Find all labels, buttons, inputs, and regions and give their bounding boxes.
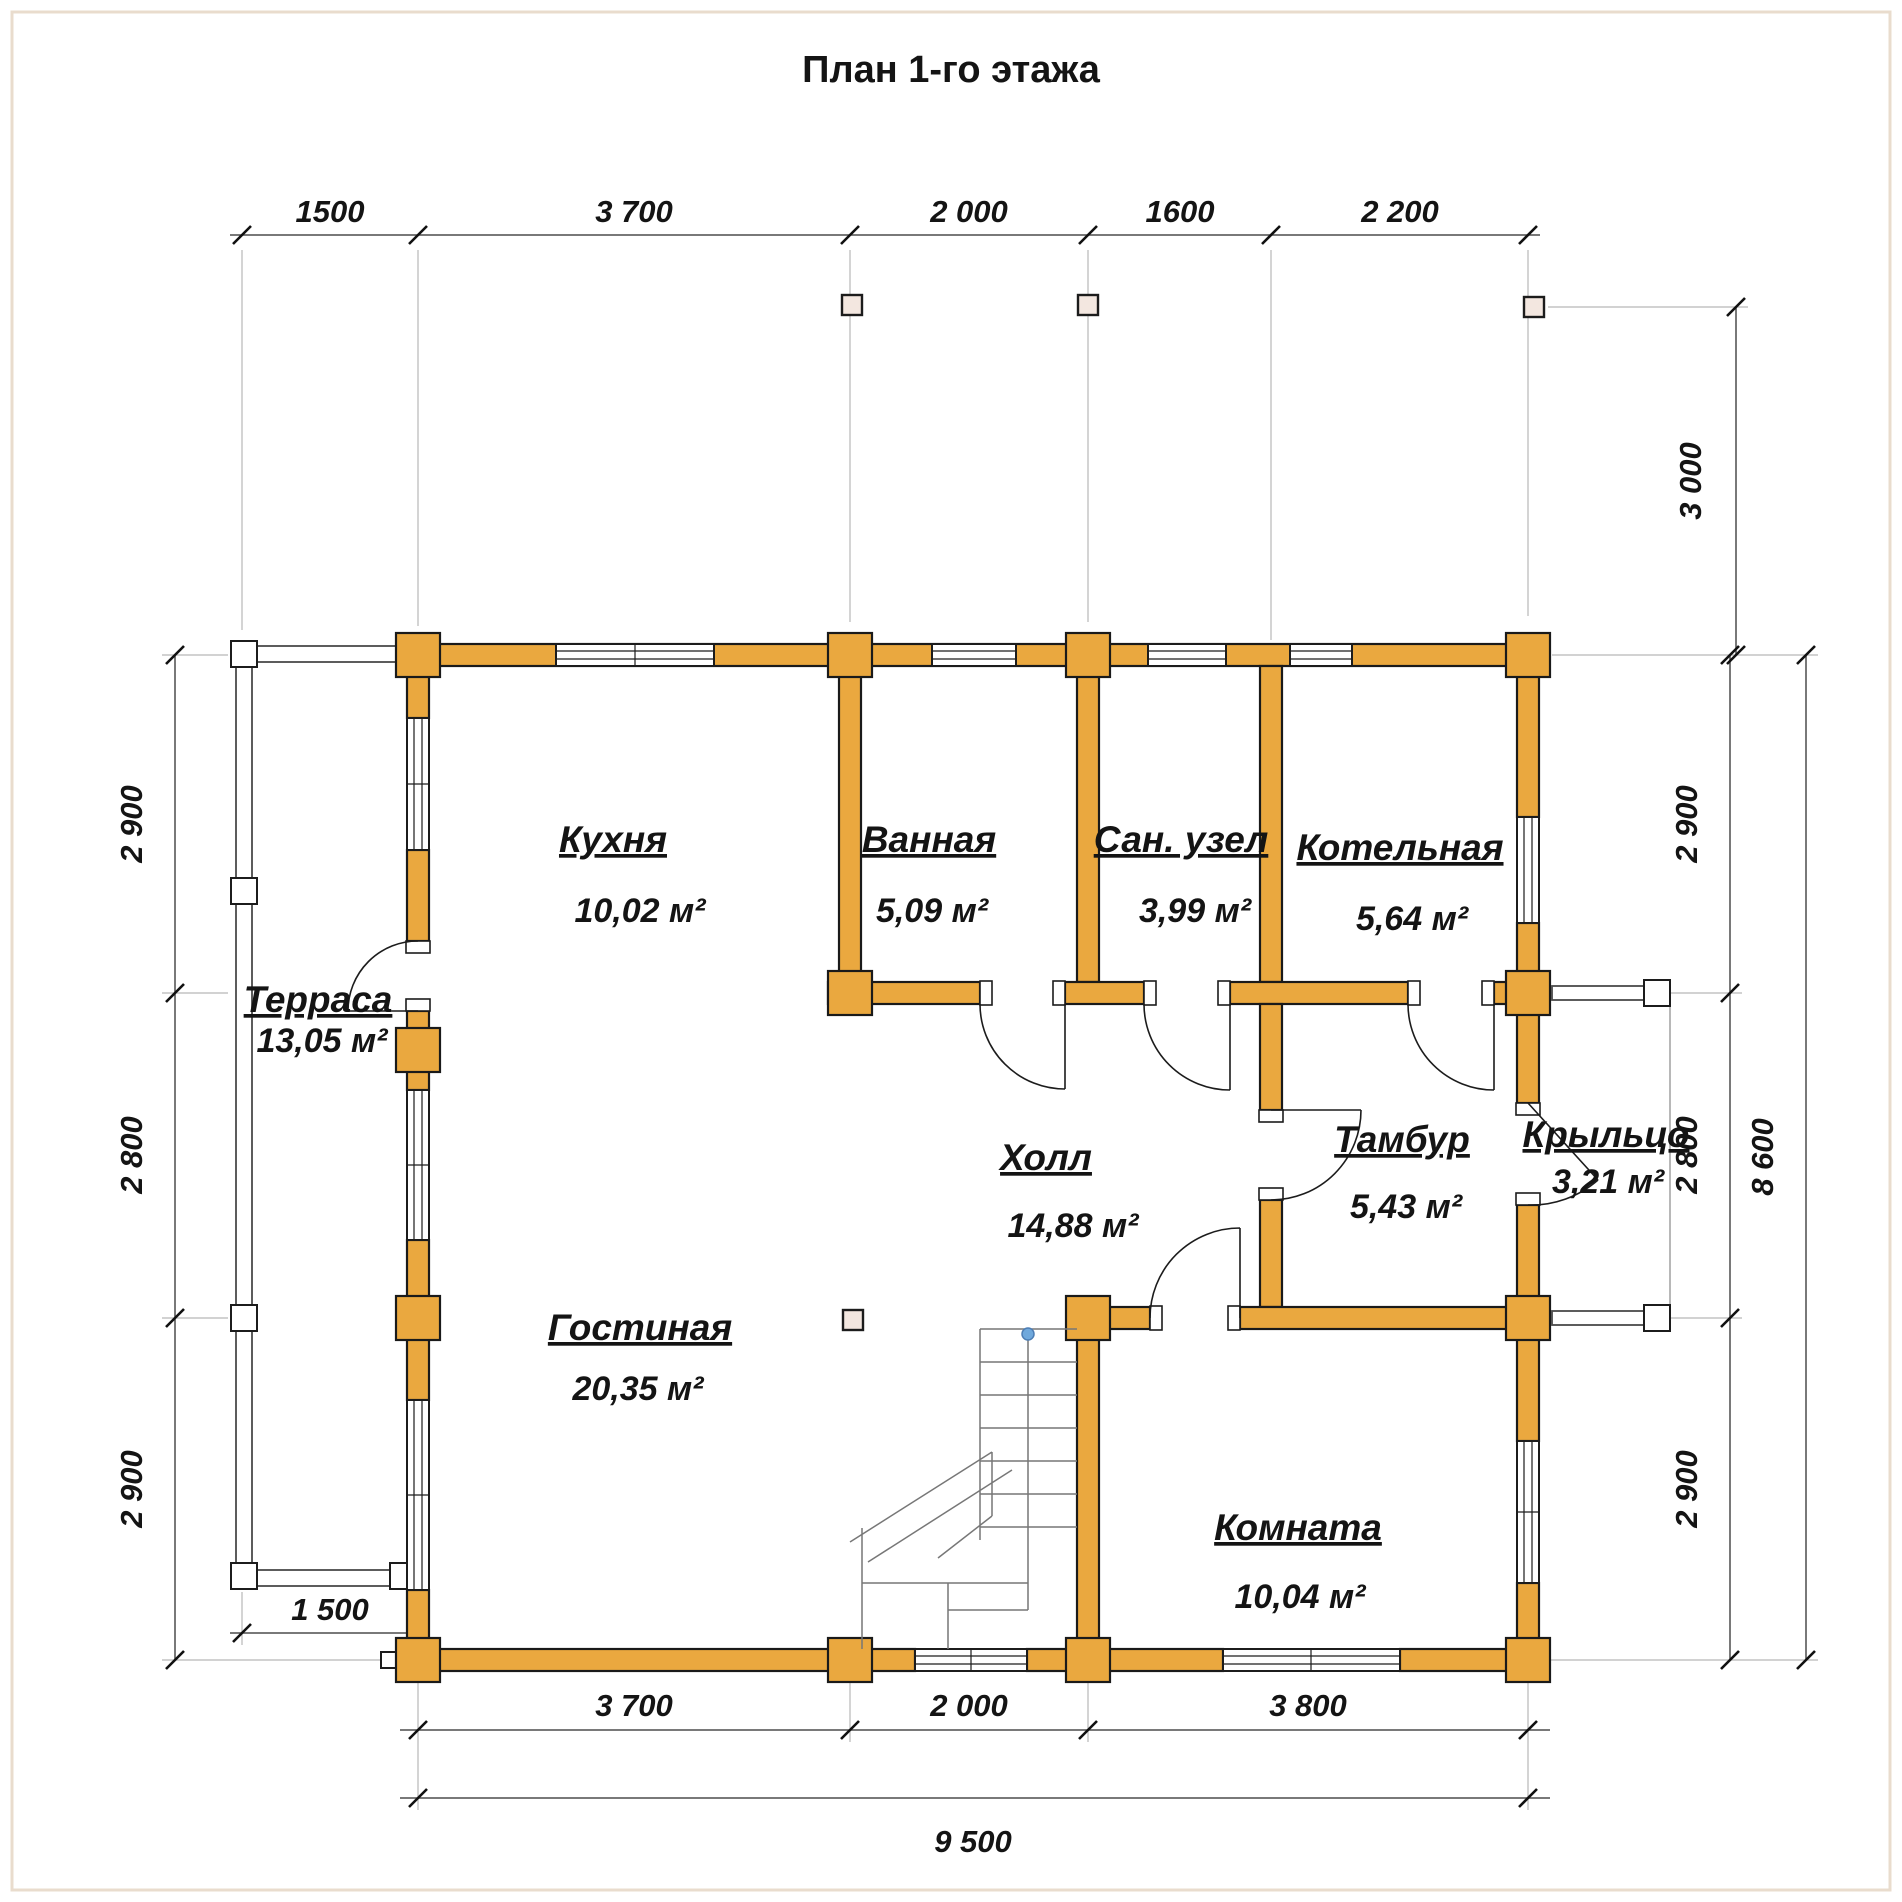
wall-column xyxy=(1066,1638,1110,1682)
door-jamb xyxy=(980,981,992,1005)
floor-plan-drawing: План 1-го этажа 1500 3 700 2 000 1600 2 … xyxy=(0,0,1902,1902)
wall-bath-row-bottom xyxy=(1230,982,1408,1004)
door-jamb xyxy=(1259,1188,1283,1200)
window-wc-top xyxy=(1148,644,1226,666)
wall-left-segment xyxy=(407,850,429,941)
door-jamb xyxy=(1150,1306,1162,1330)
room-label-hall: Холл xyxy=(998,1137,1092,1178)
door-jamb xyxy=(1516,1193,1540,1205)
room-label-living: Гостиная xyxy=(548,1307,732,1348)
dim-top-1600: 1600 xyxy=(1146,194,1215,229)
room-area-terrace: 13,05 м² xyxy=(256,1022,389,1060)
terrace-post xyxy=(231,641,257,667)
wall-column xyxy=(396,1296,440,1340)
dim-right-3000: 3 000 xyxy=(1673,442,1708,520)
room-label-wc: Сан. узел xyxy=(1094,819,1269,860)
terrace-post xyxy=(231,878,257,904)
terrace-post xyxy=(231,1563,257,1589)
wall-column xyxy=(396,1028,440,1072)
dim-right-2900b: 2 900 xyxy=(1669,1450,1704,1529)
door-jamb xyxy=(406,999,430,1011)
page-background xyxy=(0,0,1902,1902)
room-label-terrace: Терраса xyxy=(244,979,393,1020)
column-marker-icon xyxy=(843,1310,863,1330)
door-jamb xyxy=(1482,981,1494,1005)
wall-hall-tambour xyxy=(1260,1200,1282,1307)
dim-left-2900b: 2 900 xyxy=(114,1450,149,1529)
dim-left-2900a: 2 900 xyxy=(114,785,149,864)
room-area-porch: 3,21 м² xyxy=(1552,1163,1666,1201)
room-label-tambour: Тамбур xyxy=(1334,1119,1470,1160)
room-area-kitchen: 10,02 м² xyxy=(574,892,707,930)
room-area-wc: 3,99 м² xyxy=(1139,892,1253,930)
wall-column xyxy=(1066,1296,1110,1340)
door-jamb xyxy=(1259,1110,1283,1122)
window-bathroom-top xyxy=(932,644,1016,666)
wall-column xyxy=(396,1638,440,1682)
terrace-rail-bottom xyxy=(236,1570,410,1586)
room-label-bathroom: Ванная xyxy=(862,819,997,860)
wall-bottom-segment xyxy=(1027,1649,1223,1671)
door-jamb xyxy=(1053,981,1065,1005)
column-marker-icon xyxy=(1078,295,1098,315)
dim-right-2900a: 2 900 xyxy=(1669,785,1704,864)
terrace-post xyxy=(231,1305,257,1331)
window-boiler-right xyxy=(1517,817,1539,923)
porch-rail-bottom xyxy=(1552,1311,1648,1325)
wall-column xyxy=(1506,1296,1550,1340)
room-area-tambour: 5,43 м² xyxy=(1350,1188,1464,1226)
floor-plan-page: План 1-го этажа 1500 3 700 2 000 1600 2 … xyxy=(0,0,1902,1902)
wall-column xyxy=(1506,971,1550,1015)
dim-right-8600: 8 600 xyxy=(1745,1118,1780,1196)
wall-column xyxy=(1506,1638,1550,1682)
dim-left-2800: 2 800 xyxy=(114,1116,149,1195)
window-boiler-top xyxy=(1290,644,1352,666)
column-marker-icon xyxy=(1524,297,1544,317)
room-label-porch: Крыльцо xyxy=(1522,1114,1689,1155)
wall-column xyxy=(1506,633,1550,677)
dim-bottom-1500: 1 500 xyxy=(291,1592,369,1627)
porch-rail-top xyxy=(1552,986,1648,1000)
terrace-rail-left xyxy=(236,646,252,1576)
porch-post xyxy=(1644,1305,1670,1331)
wall-bath-row-bottom xyxy=(1065,982,1144,1004)
door-jamb xyxy=(1218,981,1230,1005)
door-jamb xyxy=(1228,1306,1240,1330)
wall-hall-tambour xyxy=(1260,1004,1282,1110)
porch-post xyxy=(1644,980,1670,1006)
dim-top-3700: 3 700 xyxy=(595,194,673,229)
dim-bottom-9500: 9 500 xyxy=(934,1824,1012,1859)
page-title: План 1-го этажа xyxy=(802,49,1101,91)
wall-hall-room xyxy=(1240,1307,1539,1329)
wall-column xyxy=(828,1638,872,1682)
room-area-room: 10,04 м² xyxy=(1234,1578,1367,1616)
door-jamb xyxy=(406,941,430,953)
room-area-hall: 14,88 м² xyxy=(1007,1207,1140,1245)
dim-top-1500: 1500 xyxy=(296,194,365,229)
dim-bottom-3700: 3 700 xyxy=(595,1688,673,1723)
room-label-kitchen: Кухня xyxy=(559,819,667,860)
dim-top-2200: 2 200 xyxy=(1360,194,1439,229)
dim-bottom-3800: 3 800 xyxy=(1269,1688,1347,1723)
wall-column xyxy=(828,971,872,1015)
wall-kitchen-bathroom xyxy=(839,666,861,982)
dim-top-2000: 2 000 xyxy=(929,194,1008,229)
door-jamb xyxy=(1144,981,1156,1005)
wall-column xyxy=(396,633,440,677)
column-marker-icon xyxy=(842,295,862,315)
door-jamb xyxy=(1408,981,1420,1005)
room-area-living: 20,35 м² xyxy=(571,1370,705,1408)
room-area-boiler: 5,64 м² xyxy=(1356,900,1470,938)
wall-stair-room xyxy=(1077,1329,1099,1649)
terrace-rail-top xyxy=(244,646,407,662)
dim-bottom-2000: 2 000 xyxy=(929,1688,1008,1723)
stair-start-dot-icon xyxy=(1022,1328,1034,1340)
room-area-bathroom: 5,09 м² xyxy=(876,892,990,930)
room-label-boiler: Котельная xyxy=(1296,827,1503,868)
wall-column xyxy=(828,633,872,677)
wall-column xyxy=(1066,633,1110,677)
room-label-room: Комната xyxy=(1214,1507,1382,1548)
